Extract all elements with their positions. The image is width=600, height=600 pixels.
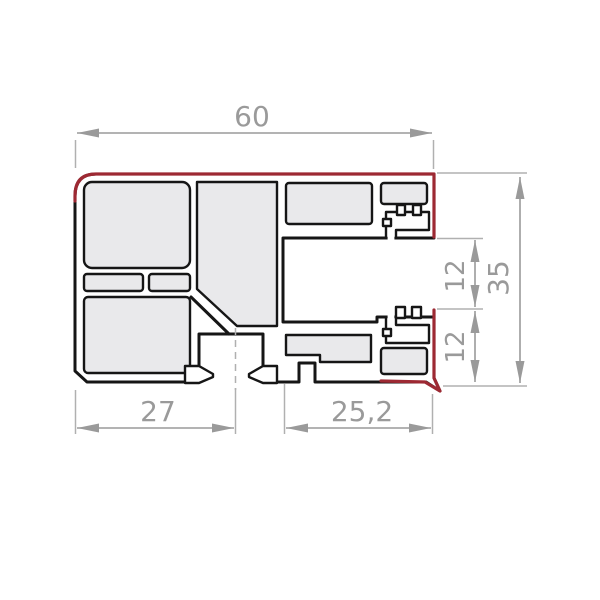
dim-label-12-upper: 12	[441, 259, 471, 292]
arrow-right-icon	[410, 129, 432, 138]
profile-cross-section-drawing: 60 35 12 12	[0, 0, 600, 600]
dim-label-25-2: 25,2	[331, 395, 393, 428]
dim-label-12-lower: 12	[441, 330, 471, 363]
dimension-segment-12-upper: 12	[437, 239, 483, 310]
upper-groove-opening	[388, 234, 395, 242]
arrow-down-icon	[471, 360, 480, 382]
chamber-mid-small-b	[149, 274, 190, 291]
arrow-up-icon	[516, 177, 525, 199]
upper-groove-notch-b	[413, 205, 421, 215]
dimension-bottom-25-2: 25,2	[285, 384, 433, 434]
chamber-top-left	[84, 182, 190, 268]
upper-groove-lip-stub	[383, 219, 391, 226]
upper-groove-notch-a	[397, 205, 405, 215]
right-foot	[249, 366, 277, 383]
arrow-left-icon	[286, 424, 308, 433]
arrow-up-icon	[471, 311, 480, 333]
dimension-bottom-27: 27	[76, 388, 236, 434]
lower-groove-tooth-a	[396, 307, 405, 318]
chamber-bottom-left	[84, 297, 190, 373]
left-foot	[185, 366, 213, 383]
arrow-left-icon	[77, 424, 99, 433]
arrow-down-icon	[471, 285, 480, 307]
lower-groove-tooth-b	[412, 307, 421, 318]
lower-groove-opening	[388, 314, 395, 322]
chamber-top-right-small	[381, 183, 427, 204]
arrow-left-icon	[77, 129, 99, 138]
profile-body	[75, 174, 440, 391]
screw-channel-feet	[185, 366, 277, 383]
dim-label-35: 35	[482, 260, 515, 296]
lower-groove-lip-stub	[383, 329, 391, 336]
chamber-bottom-right-small	[381, 348, 427, 374]
dimension-width-60: 60	[76, 100, 434, 169]
arrow-up-icon	[471, 240, 480, 262]
chamber-mid-small-a	[84, 274, 143, 291]
arrow-right-icon	[409, 424, 431, 433]
dimension-segment-12-lower: 12	[441, 311, 480, 382]
drawing-canvas: 60 35 12 12	[0, 0, 600, 600]
dim-label-27: 27	[140, 395, 176, 428]
chamber-top-right-wide	[286, 183, 372, 224]
arrow-right-icon	[212, 424, 234, 433]
arrow-down-icon	[516, 361, 525, 383]
dim-label-60: 60	[234, 100, 270, 133]
